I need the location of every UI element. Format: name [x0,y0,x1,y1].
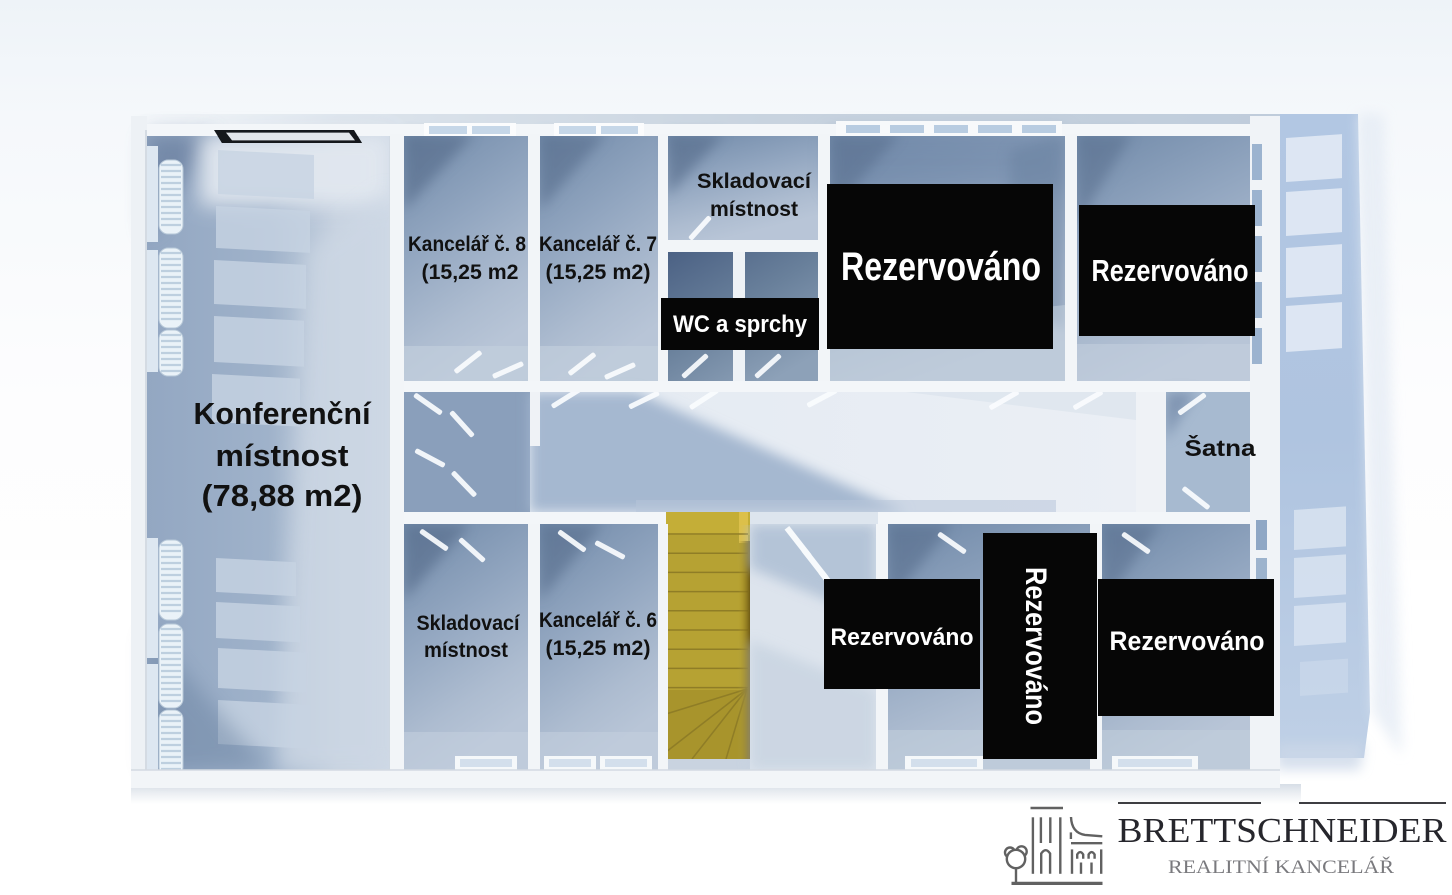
svg-text:(78,88 m2): (78,88 m2) [202,478,363,513]
svg-text:Rezervováno: Rezervováno [1092,253,1249,288]
svg-text:Rezervováno: Rezervováno [1019,567,1052,725]
svg-text:Konferenční: Konferenční [194,396,372,431]
svg-text:WC a sprchy: WC a sprchy [673,311,808,338]
svg-text:REALITNÍ KANCELÁŘ: REALITNÍ KANCELÁŘ [1168,856,1394,878]
svg-text:(15,25 m2: (15,25 m2 [422,260,519,284]
svg-text:místnost: místnost [710,197,798,221]
svg-text:místnost: místnost [216,438,349,473]
svg-text:Šatna: Šatna [1185,434,1256,461]
svg-text:Kancelář č. 7: Kancelář č. 7 [539,232,657,256]
svg-text:Rezervováno: Rezervováno [1110,626,1265,656]
svg-text:Rezervováno: Rezervováno [831,624,974,651]
svg-text:místnost: místnost [424,638,508,662]
svg-text:(15,25 m2): (15,25 m2) [546,260,651,284]
svg-text:BRETTSCHNEIDER: BRETTSCHNEIDER [1118,811,1448,850]
svg-text:Kancelář č. 8: Kancelář č. 8 [408,232,526,256]
svg-text:(15,25 m2): (15,25 m2) [546,636,651,660]
svg-text:Kancelář č. 6: Kancelář č. 6 [539,608,657,632]
svg-text:Rezervováno: Rezervováno [841,245,1041,289]
svg-text:Skladovací: Skladovací [417,611,521,635]
svg-text:Skladovací: Skladovací [697,169,812,193]
